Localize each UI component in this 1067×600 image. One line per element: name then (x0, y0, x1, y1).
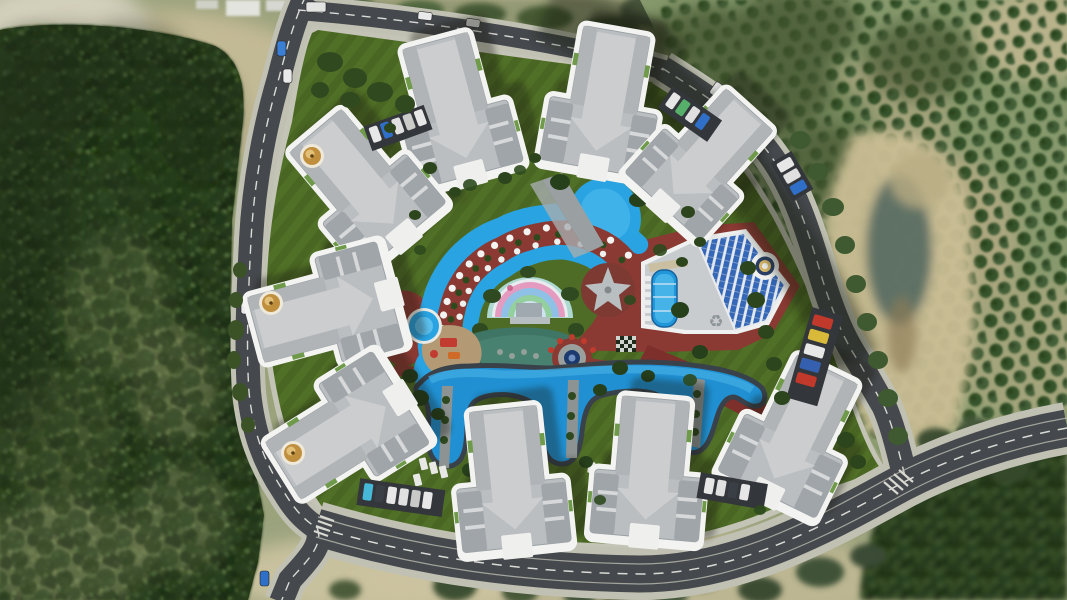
svg-text:♻: ♻ (708, 312, 723, 331)
